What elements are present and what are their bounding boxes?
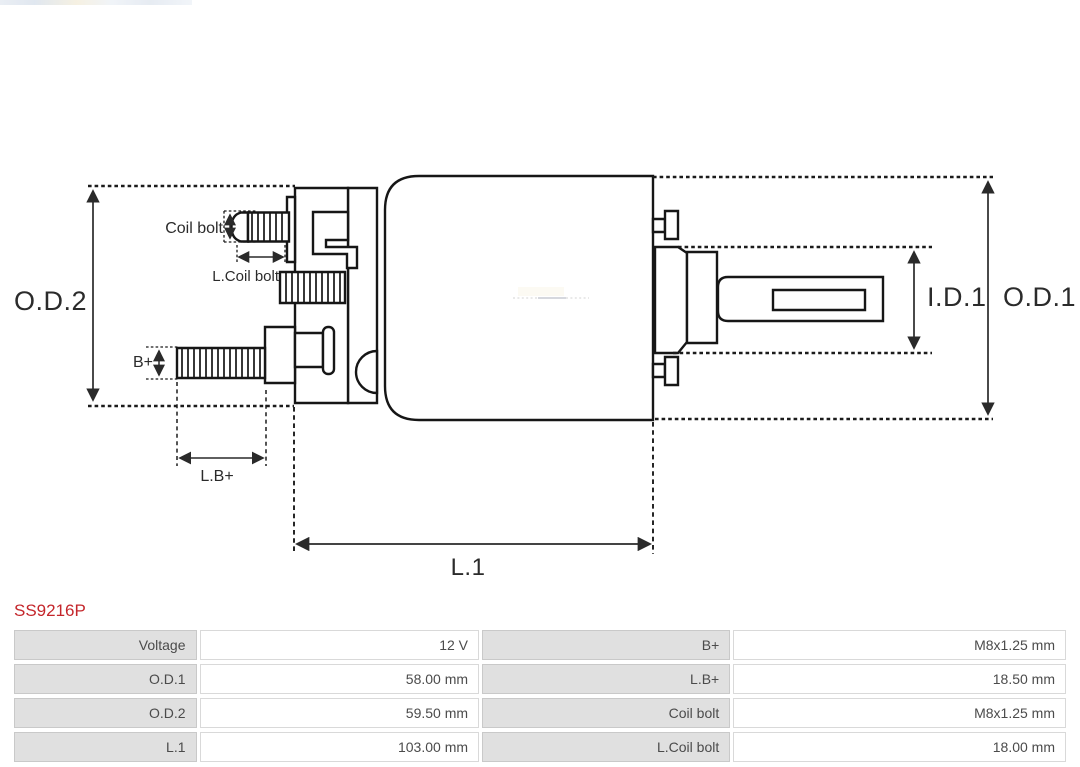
spec-row: O.D.1 58.00 mm L.B+ 18.50 mm [14,664,1066,694]
solenoid-diagram: O.D.2 Coil bolt L.Coil bolt B+ L.B+ L.1 … [0,0,1080,592]
end-cone [655,247,687,353]
spec-value-cell: 18.00 mm [733,732,1066,762]
terminal-bottom-stem [653,364,665,377]
label-l1: L.1 [451,554,486,581]
spec-value-cell: 58.00 mm [200,664,480,694]
spec-label-cell: B+ [482,630,730,660]
bplus-block [265,327,295,383]
label-l-b-plus: L.B+ [200,468,233,485]
spec-label-cell: Voltage [14,630,197,660]
spec-row: L.1 103.00 mm L.Coil bolt 18.00 mm [14,732,1066,762]
catalog-page: O.D.2 Coil bolt L.Coil bolt B+ L.B+ L.1 … [0,0,1080,767]
label-od1: O.D.1 [1003,282,1076,312]
spec-label-cell: L.1 [14,732,197,762]
spec-label-cell: O.D.2 [14,698,197,728]
bplus-stud [177,348,265,378]
solenoid-body-group [177,176,883,420]
plunger-slot [773,290,865,310]
spec-value-cell: 59.50 mm [200,698,480,728]
spec-row: O.D.2 59.50 mm Coil bolt M8x1.25 mm [14,698,1066,728]
coil-bushing [280,272,345,303]
bplus-washer [323,327,334,374]
spec-table: Voltage 12 V B+ M8x1.25 mm O.D.1 58.00 m… [11,626,1069,766]
spec-value-cell: 103.00 mm [200,732,480,762]
spec-value-cell: 12 V [200,630,480,660]
label-id1: I.D.1 [927,282,987,312]
spec-label-cell: L.B+ [482,664,730,694]
terminal-top-stem [653,219,665,232]
part-number: SS9216P [14,601,86,621]
label-b-plus: B+ [133,354,153,371]
spec-row: Voltage 12 V B+ M8x1.25 mm [14,630,1066,660]
label-coil-bolt: Coil bolt [165,220,223,237]
bplus-inner-block [295,333,323,367]
terminal-top-head [665,211,678,239]
spec-label-cell: Coil bolt [482,698,730,728]
label-l-coil-bolt: L.Coil bolt [212,268,280,285]
spec-value-cell: M8x1.25 mm [733,630,1066,660]
spec-label-cell: L.Coil bolt [482,732,730,762]
end-bushing [687,252,717,343]
coil-bolt-stud [232,213,249,242]
terminal-bottom-head [665,357,678,385]
spec-label-cell: O.D.1 [14,664,197,694]
label-od2: O.D.2 [14,286,87,316]
spec-value-cell: 18.50 mm [733,664,1066,694]
spec-value-cell: M8x1.25 mm [733,698,1066,728]
